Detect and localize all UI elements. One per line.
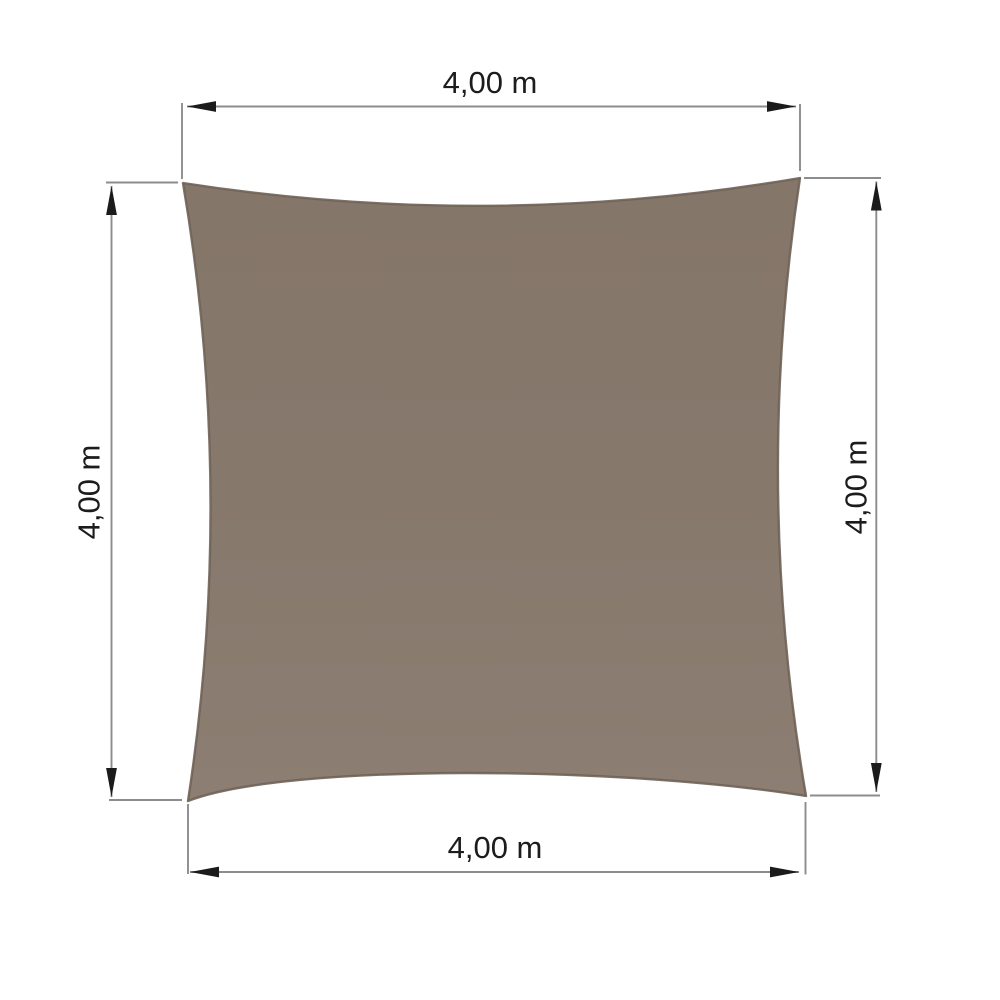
svg-text:4,00 m: 4,00 m (839, 440, 874, 535)
svg-text:4,00 m: 4,00 m (72, 445, 107, 540)
svg-text:4,00 m: 4,00 m (443, 65, 538, 100)
svg-text:4,00 m: 4,00 m (448, 830, 543, 865)
